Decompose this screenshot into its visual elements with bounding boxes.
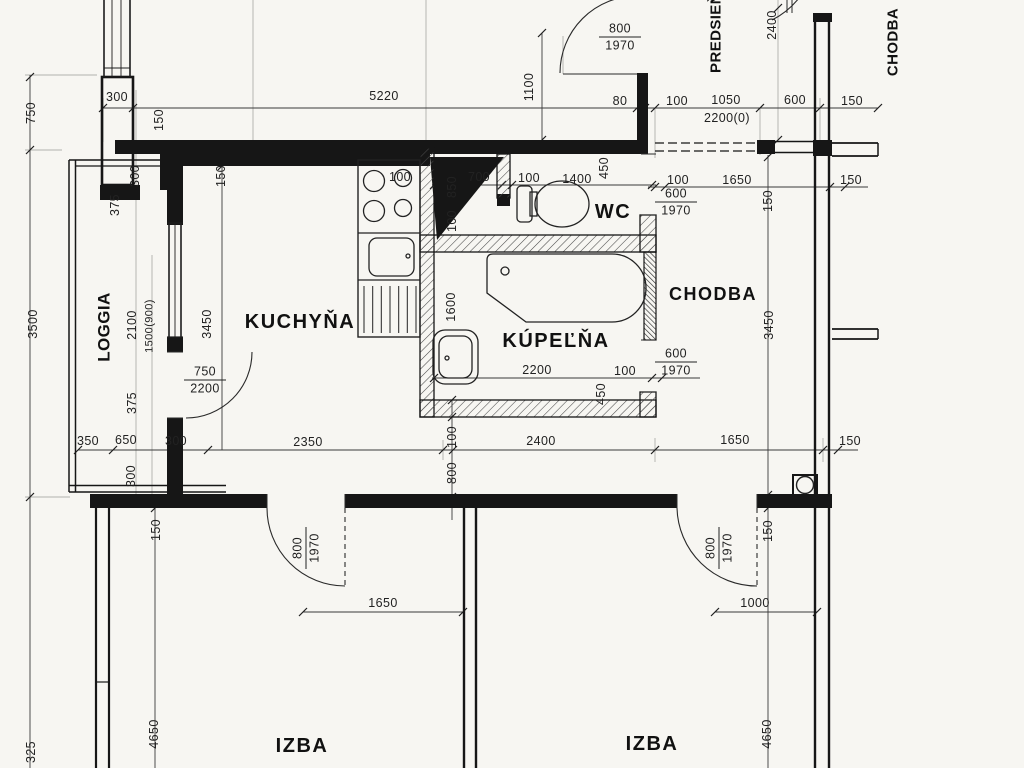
dim-bl-1650: 1650 <box>368 597 397 610</box>
dim-left-3500: 3500 <box>27 309 40 338</box>
fraction-bar <box>655 202 697 203</box>
dim-kitchen-3450: 3450 <box>201 309 214 338</box>
room-label-building-corridor: CHODBA <box>886 8 901 76</box>
stove-burner <box>395 200 412 217</box>
kitchen-sink <box>369 238 414 276</box>
door-width: 800 <box>291 537 305 559</box>
dim-kitchen-100: 100 <box>389 171 411 184</box>
dim-mid-800: 800 <box>446 462 459 484</box>
dim-loggia-2100: 2100 <box>126 310 139 339</box>
stove-burner <box>364 201 385 222</box>
dim-hall-3450: 3450 <box>763 310 776 339</box>
dim-mid-300: 300 <box>165 435 187 448</box>
column <box>797 477 814 494</box>
dim-r-150: 150 <box>840 174 862 187</box>
room-label-wc: WC <box>595 202 631 222</box>
dim-izba-right-4650: 4650 <box>761 719 774 748</box>
dim-wc-100: 100 <box>518 172 540 185</box>
room-label-hallway: CHODBA <box>669 285 757 303</box>
door-width: 800 <box>704 537 718 559</box>
door-width: 750 <box>194 365 216 379</box>
room-label-bathroom: KÚPEĽŇA <box>502 331 609 351</box>
dim-left-750: 750 <box>25 102 38 124</box>
dim-top-5220: 5220 <box>369 90 398 103</box>
dim-mid-2350: 2350 <box>293 436 322 449</box>
fraction-bar <box>599 37 641 38</box>
door-jambs <box>167 0 792 508</box>
dim-left-325: 325 <box>25 741 38 763</box>
washbasin <box>433 330 478 384</box>
room-label-loggia: LOGGIA <box>96 292 113 361</box>
dim-bath-1600: 1600 <box>445 292 458 321</box>
kitchen-counter <box>358 160 420 337</box>
bathtub-drain <box>501 267 509 275</box>
dim-izba-left-4650: 4650 <box>148 719 161 748</box>
door-width: 600 <box>665 347 687 361</box>
floor-plan: 300 5220 80 100 1050 600 150 2200(0) 110… <box>0 0 1024 768</box>
entrance-opening <box>655 143 757 151</box>
fraction-bar <box>655 362 697 363</box>
dim-mid-150: 150 <box>839 435 861 448</box>
dim-shaft-850: 850 <box>446 176 459 198</box>
door-width: 800 <box>609 22 631 36</box>
dim-wall-150: 150 <box>762 190 775 212</box>
room-label-kitchen: KUCHYŇA <box>245 312 356 332</box>
entry-door-size: 800 1970 <box>599 22 641 53</box>
dim-mid-300b: 300 <box>125 465 138 487</box>
fraction-bar <box>306 527 307 569</box>
dim-top-600: 600 <box>784 94 806 107</box>
room-label-izba-left: IZBA <box>276 736 329 756</box>
door-height: 1970 <box>661 364 690 378</box>
dim-mid-150b: 150 <box>150 519 163 541</box>
dim-br-150: 150 <box>762 520 775 542</box>
dim-top-1050: 1050 <box>711 94 740 107</box>
bathroom-door-size: 600 1970 <box>655 347 697 378</box>
fraction-bar <box>719 527 720 569</box>
fraction-bar <box>184 380 226 381</box>
wc-door-size: 600 1970 <box>655 187 697 218</box>
door-height: 1970 <box>605 39 634 53</box>
dim-shaft-100: 100 <box>446 210 459 232</box>
door-height: 1970 <box>721 533 735 562</box>
dim-top-150: 150 <box>841 95 863 108</box>
loggia-door-size: 750 2200 <box>184 365 226 396</box>
door-height: 2200 <box>190 382 219 396</box>
door-height: 1970 <box>308 533 322 562</box>
dim-bath-2200: 2200 <box>522 364 551 377</box>
dim-wc-700: 700 <box>468 171 490 184</box>
dim-left-300: 300 <box>129 165 142 187</box>
door-height: 1970 <box>661 204 690 218</box>
dim-kitchen-150: 150 <box>215 165 228 187</box>
bathtub <box>487 254 646 322</box>
toilet-seat <box>530 192 537 216</box>
dim-br-1000: 1000 <box>740 597 769 610</box>
dim-1100: 1100 <box>523 73 536 101</box>
dim-mid-350: 350 <box>77 435 99 448</box>
dim-left-375b: 375 <box>126 392 139 414</box>
dim-mid-650: 650 <box>115 434 137 447</box>
room-label-izba-right: IZBA <box>626 734 679 754</box>
dim-top-300: 300 <box>106 91 128 104</box>
door-width: 600 <box>665 187 687 201</box>
dim-top-80: 80 <box>613 95 628 108</box>
chimney-shaft <box>644 252 656 340</box>
room-left-door-size: 800 1970 <box>291 527 322 569</box>
dim-r-100: 100 <box>667 174 689 187</box>
dim-bath-100: 100 <box>614 365 636 378</box>
dim-r-1650: 1650 <box>722 174 751 187</box>
dim-bath-450: 450 <box>595 383 608 405</box>
dim-wc-450: 450 <box>598 157 611 179</box>
dim-2400: 2400 <box>766 10 779 39</box>
room-label-predsien: PREDSIEŇ <box>709 0 724 73</box>
dim-mid-2400: 2400 <box>526 435 555 448</box>
room-right-door-size: 800 1970 <box>704 527 735 569</box>
dim-left-375: 375 <box>109 194 122 216</box>
dim-mid-1650: 1650 <box>720 434 749 447</box>
dim-left-150: 150 <box>153 109 166 131</box>
stove-burner <box>364 171 385 192</box>
dim-mid-100: 100 <box>446 426 459 448</box>
toilet-bowl <box>535 181 589 227</box>
dim-wc-1400: 1400 <box>562 173 591 186</box>
dim-opening-2200: 2200(0) <box>704 112 750 125</box>
dim-top-100: 100 <box>666 95 688 108</box>
dim-window-1500-900: 1500(900) <box>145 299 156 353</box>
